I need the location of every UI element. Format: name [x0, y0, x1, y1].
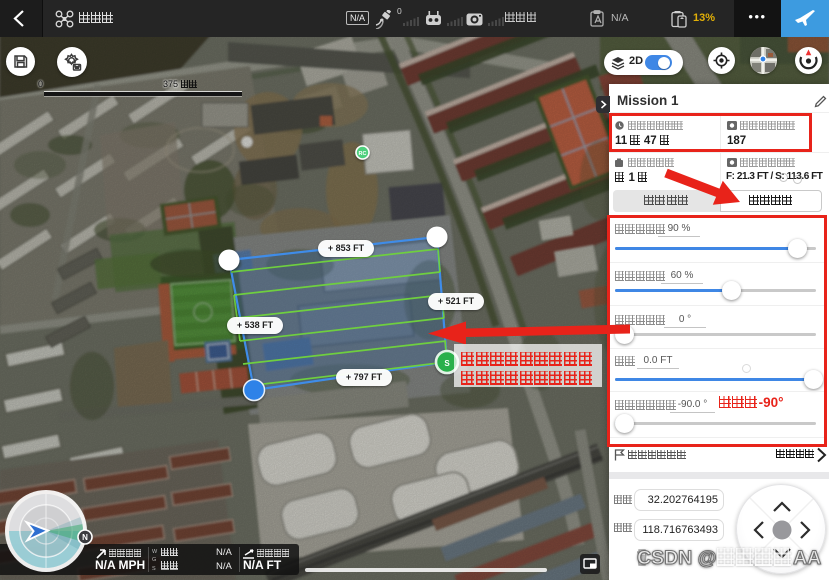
svg-text:S: S	[444, 359, 450, 368]
svg-text:RC: RC	[359, 151, 367, 157]
svg-text:N: N	[82, 533, 88, 542]
